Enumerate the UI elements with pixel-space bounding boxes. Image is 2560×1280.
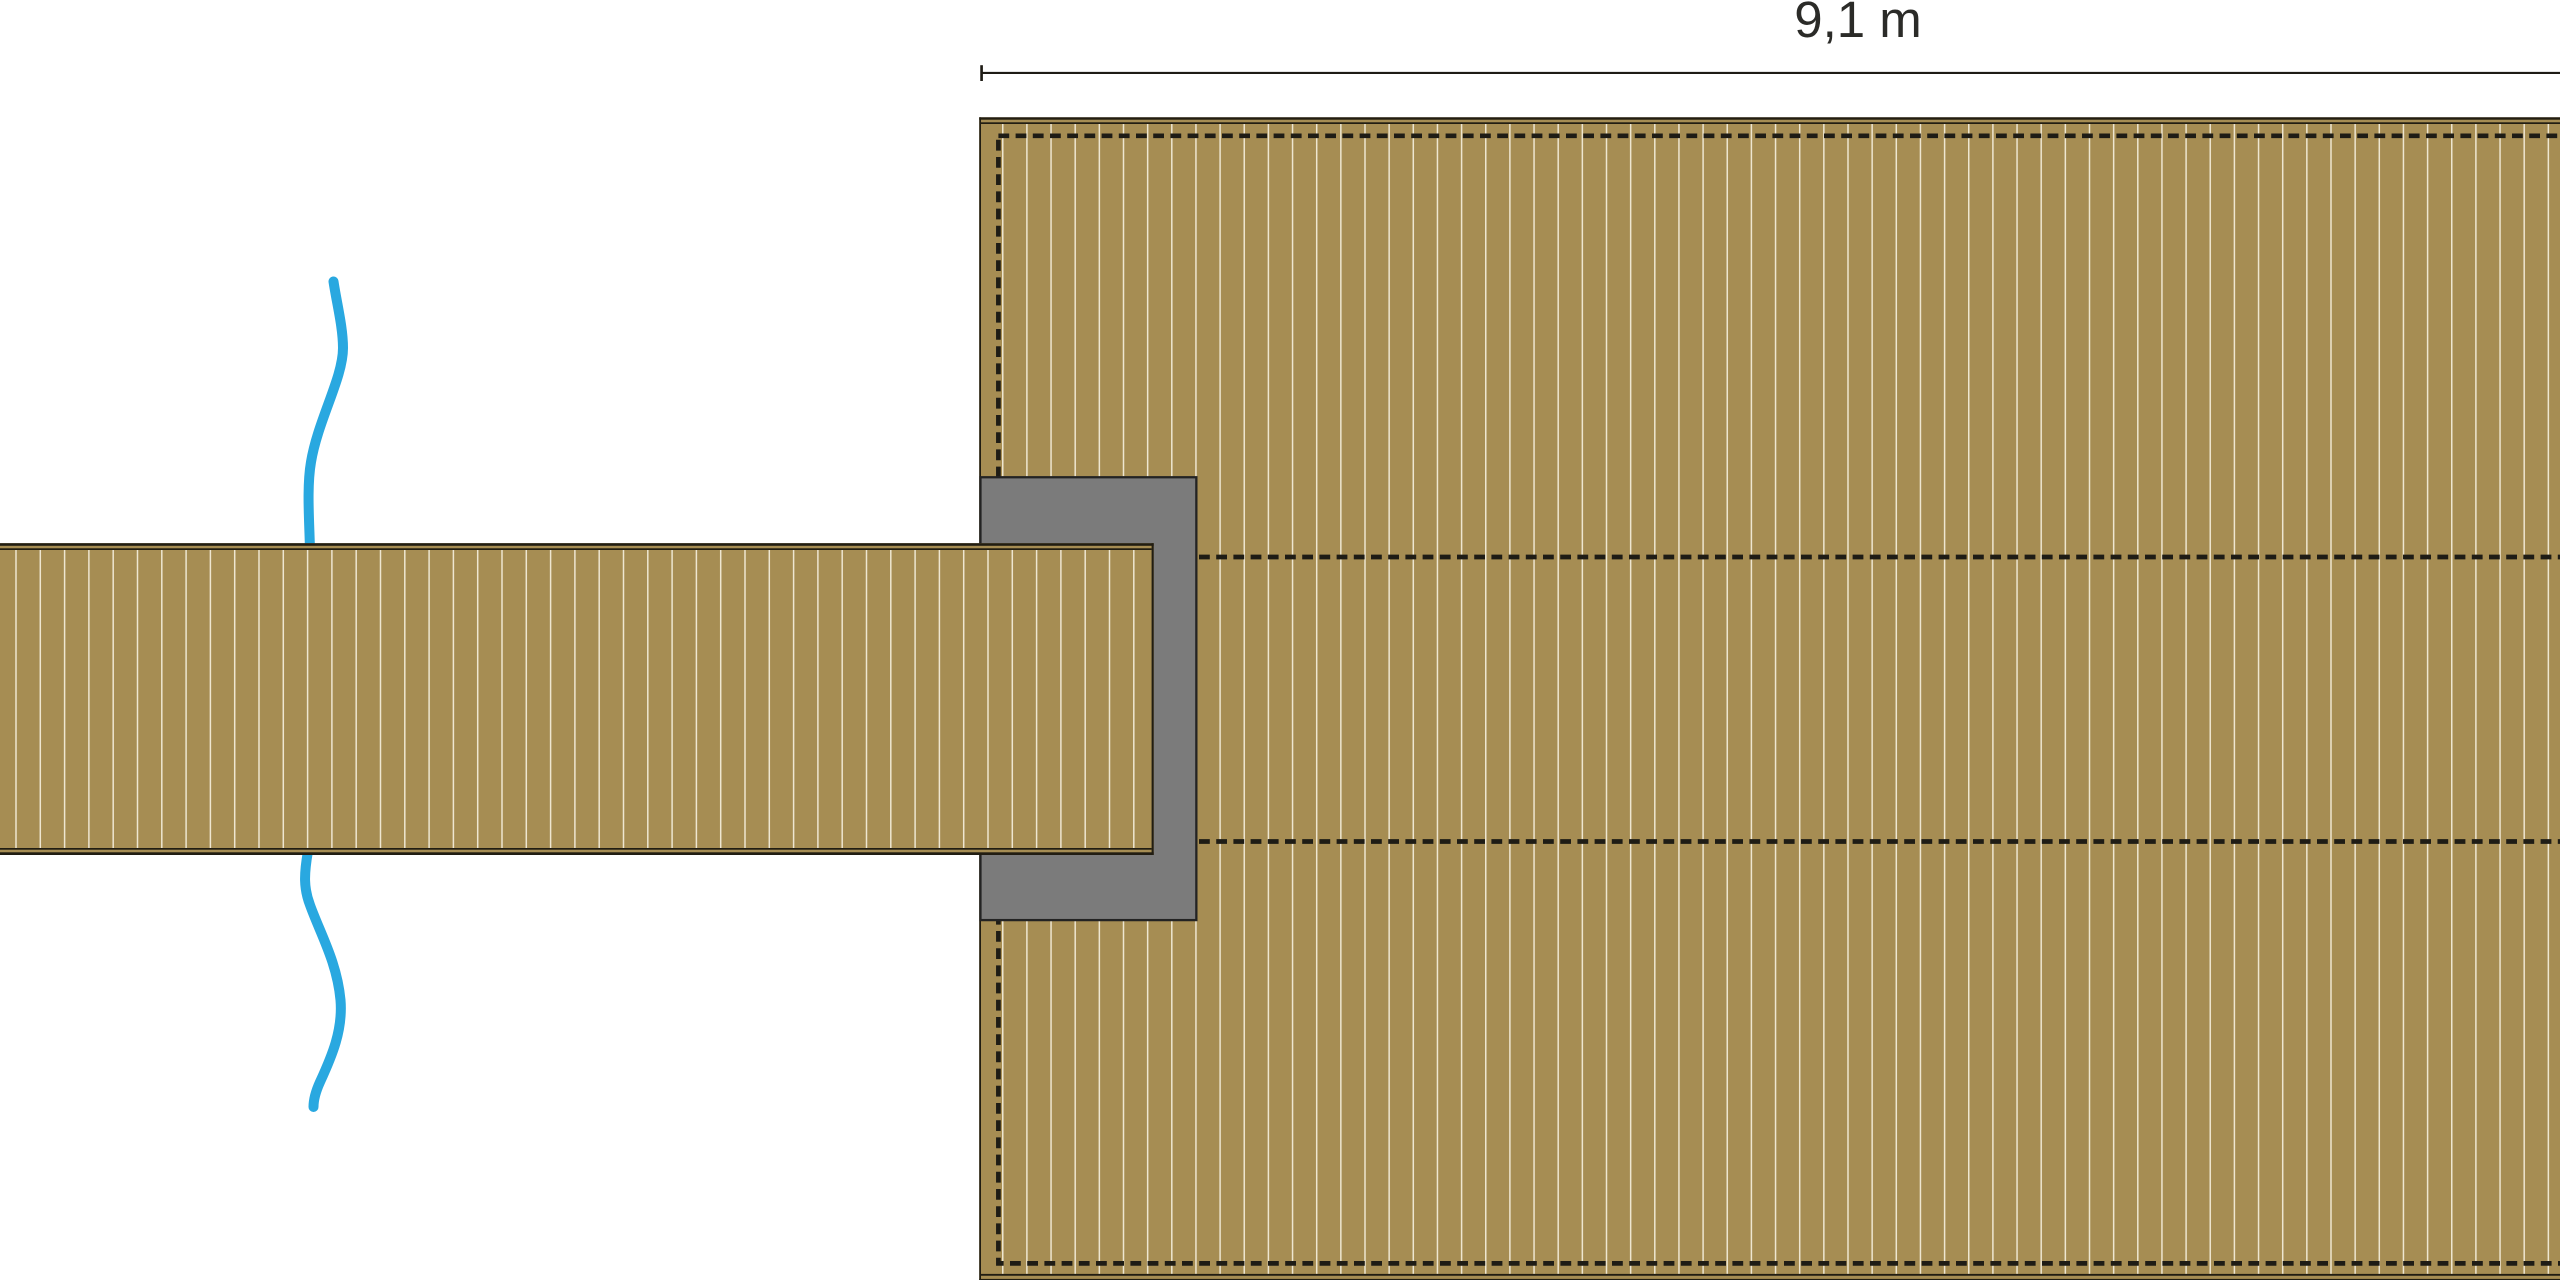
- svg-text:9,1 m: 9,1 m: [1794, 0, 1922, 48]
